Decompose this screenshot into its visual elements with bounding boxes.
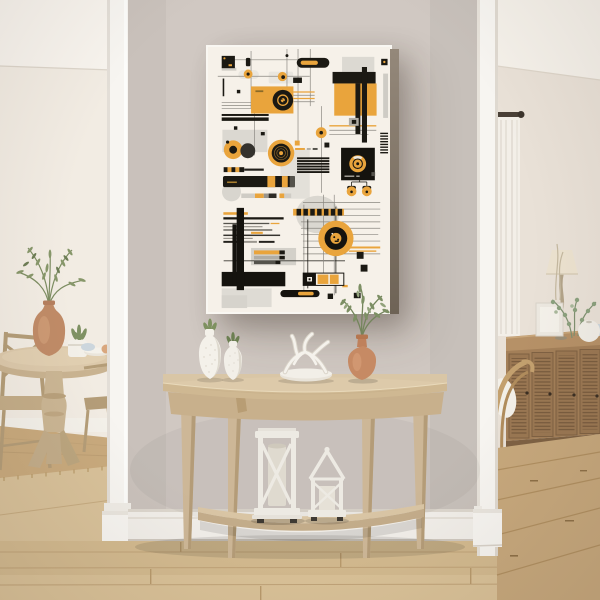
console-table: [163, 284, 447, 558]
interior-photo: [0, 0, 600, 600]
scene-foreground: [0, 0, 600, 600]
lantern-tall: [251, 428, 305, 525]
bud-vase-plant: [339, 284, 390, 384]
coral-decor: [278, 334, 334, 384]
lantern-small: [305, 447, 349, 525]
white-vase-tall: [197, 319, 223, 383]
